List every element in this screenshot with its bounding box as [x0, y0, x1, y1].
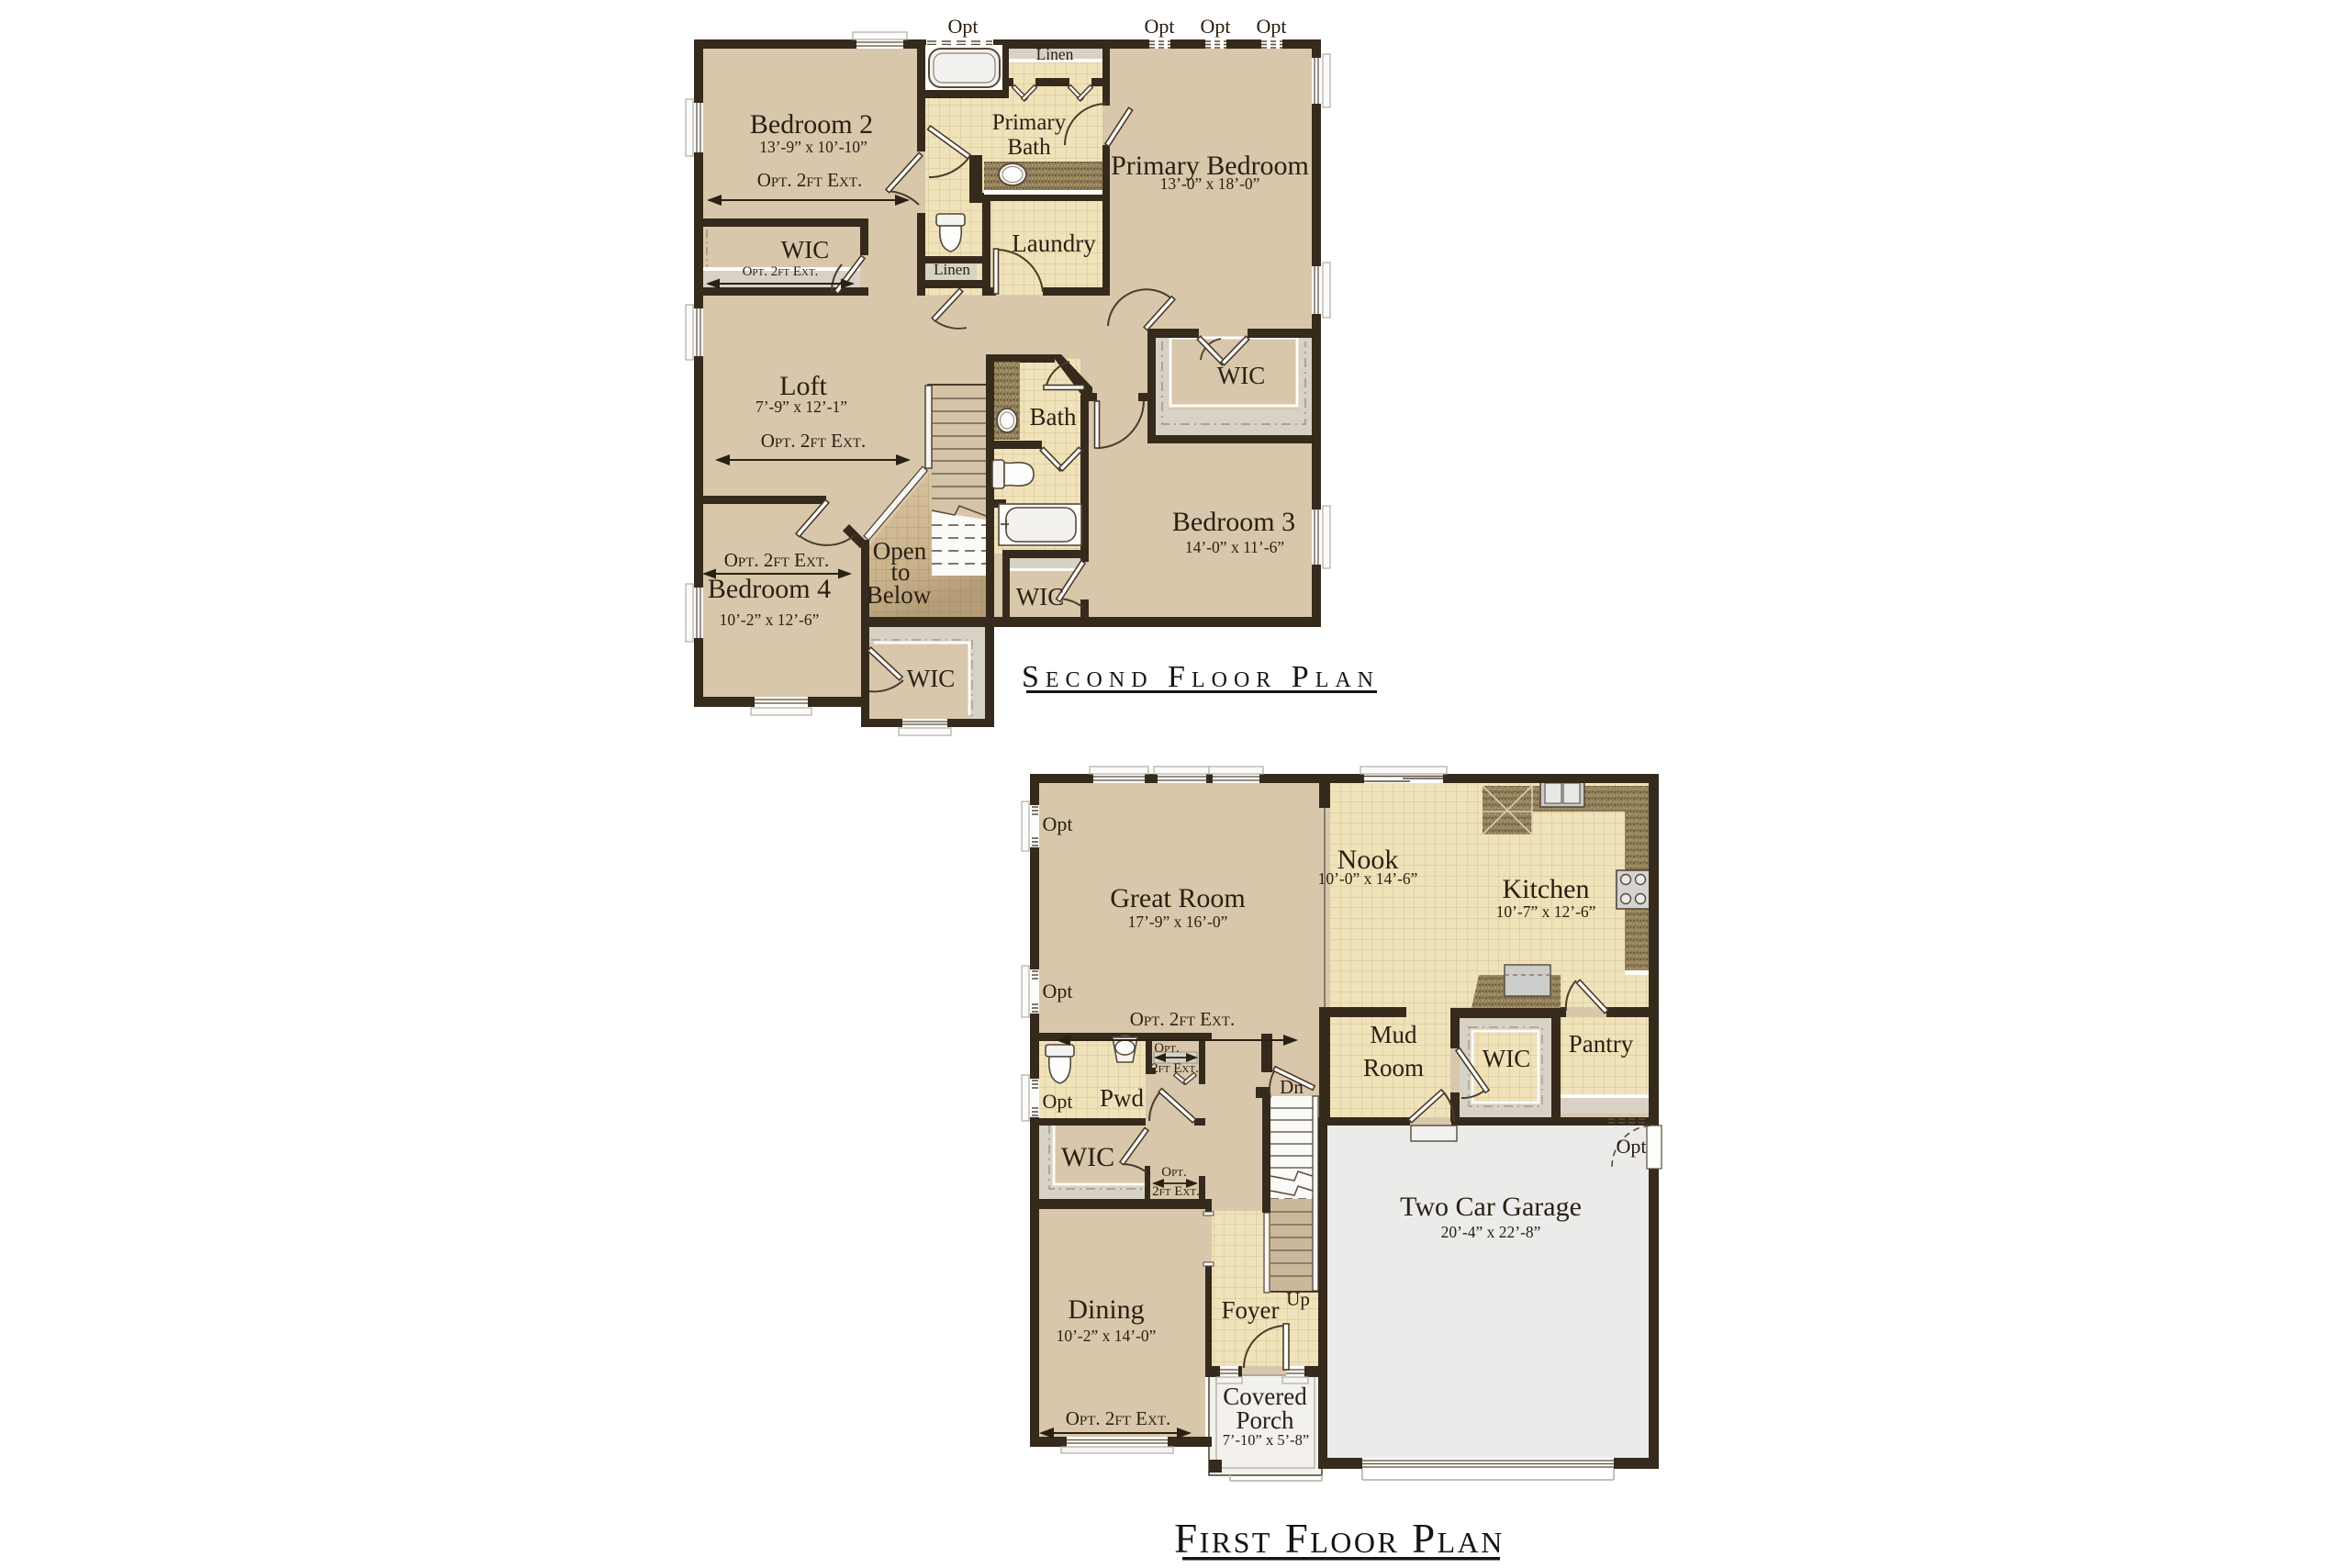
svg-text:Opt. 2ft Ext.: Opt. 2ft Ext. — [761, 430, 867, 452]
svg-text:Opt.: Opt. — [1161, 1165, 1186, 1180]
svg-text:Laundry: Laundry — [1012, 230, 1096, 257]
svg-text:Primary: Primary — [992, 110, 1067, 135]
svg-text:WIC: WIC — [1483, 1045, 1530, 1072]
svg-text:Linen: Linen — [1036, 45, 1074, 63]
svg-text:10’-2” x 12’-6”: 10’-2” x 12’-6” — [720, 610, 820, 629]
svg-text:WIC: WIC — [781, 236, 829, 263]
svg-text:14’-0” x 11’-6”: 14’-0” x 11’-6” — [1185, 538, 1284, 556]
svg-text:First Floor Plan: First Floor Plan — [1174, 1516, 1505, 1562]
svg-text:Linen: Linen — [934, 261, 970, 278]
svg-text:Opt. 2ft Ext.: Opt. 2ft Ext. — [724, 549, 830, 571]
svg-text:2ft Ext.: 2ft Ext. — [1152, 1184, 1200, 1199]
svg-text:Below: Below — [867, 581, 932, 609]
svg-text:Dn: Dn — [1280, 1076, 1304, 1098]
svg-text:WIC: WIC — [1016, 583, 1064, 610]
svg-text:WIC: WIC — [907, 665, 955, 692]
svg-text:2ft Ext.: 2ft Ext. — [1151, 1061, 1199, 1076]
svg-text:Two Car Garage: Two Car Garage — [1400, 1192, 1582, 1222]
svg-text:7’-9” x 12’-1”: 7’-9” x 12’-1” — [755, 398, 847, 416]
svg-text:Porch: Porch — [1237, 1406, 1294, 1434]
svg-text:Opt: Opt — [948, 15, 979, 38]
svg-text:Opt: Opt — [1043, 980, 1073, 1002]
svg-text:Kitchen: Kitchen — [1503, 874, 1590, 904]
svg-text:7’-10” x 5’-8”: 7’-10” x 5’-8” — [1223, 1431, 1309, 1449]
svg-text:Great Room: Great Room — [1110, 883, 1245, 913]
svg-text:Opt: Opt — [1043, 812, 1073, 835]
svg-text:Second Floor Plan: Second Floor Plan — [1022, 660, 1380, 694]
svg-text:Opt. 2ft Ext.: Opt. 2ft Ext. — [757, 169, 863, 191]
svg-text:Bedroom 3: Bedroom 3 — [1172, 507, 1295, 537]
svg-text:Opt: Opt — [1201, 15, 1231, 38]
svg-text:WIC: WIC — [1217, 362, 1265, 389]
svg-text:10’-2” x 14’-0”: 10’-2” x 14’-0” — [1057, 1327, 1157, 1345]
svg-text:Opt: Opt — [1617, 1135, 1647, 1158]
svg-text:Pantry: Pantry — [1569, 1030, 1634, 1058]
svg-text:10’-7” x 12’-6”: 10’-7” x 12’-6” — [1496, 902, 1596, 921]
svg-text:Bath: Bath — [1007, 135, 1051, 160]
svg-text:Bath: Bath — [1030, 403, 1077, 431]
svg-text:Opt. 2ft Ext.: Opt. 2ft Ext. — [1130, 1008, 1236, 1030]
svg-text:Pwd: Pwd — [1100, 1084, 1145, 1112]
svg-text:Room: Room — [1363, 1054, 1424, 1081]
svg-text:Opt: Opt — [1257, 15, 1287, 38]
svg-text:Opt: Opt — [1043, 1090, 1073, 1113]
svg-text:Bedroom 2: Bedroom 2 — [750, 109, 873, 140]
svg-text:13’-0” x 18’-0”: 13’-0” x 18’-0” — [1160, 174, 1260, 193]
svg-text:Opt. 2ft Ext.: Opt. 2ft Ext. — [1066, 1407, 1171, 1429]
svg-text:13’-9” x 10’-10”: 13’-9” x 10’-10” — [759, 138, 867, 156]
svg-text:Opt.: Opt. — [1154, 1041, 1179, 1056]
svg-text:Mud: Mud — [1370, 1021, 1417, 1048]
svg-text:Foyer: Foyer — [1222, 1296, 1280, 1324]
svg-text:Opt. 2ft Ext.: Opt. 2ft Ext. — [743, 264, 819, 279]
svg-text:10’-0” x 14’-6”: 10’-0” x 14’-6” — [1318, 869, 1418, 888]
svg-text:Opt: Opt — [1145, 15, 1175, 38]
svg-text:WIC: WIC — [1061, 1142, 1114, 1172]
svg-text:Dining: Dining — [1068, 1294, 1144, 1325]
svg-text:17’-9” x 16’-0”: 17’-9” x 16’-0” — [1128, 913, 1228, 931]
svg-text:Up: Up — [1286, 1288, 1310, 1310]
svg-text:Bedroom 4: Bedroom 4 — [708, 574, 831, 604]
svg-text:20’-4” x 22’-8”: 20’-4” x 22’-8” — [1441, 1223, 1541, 1241]
